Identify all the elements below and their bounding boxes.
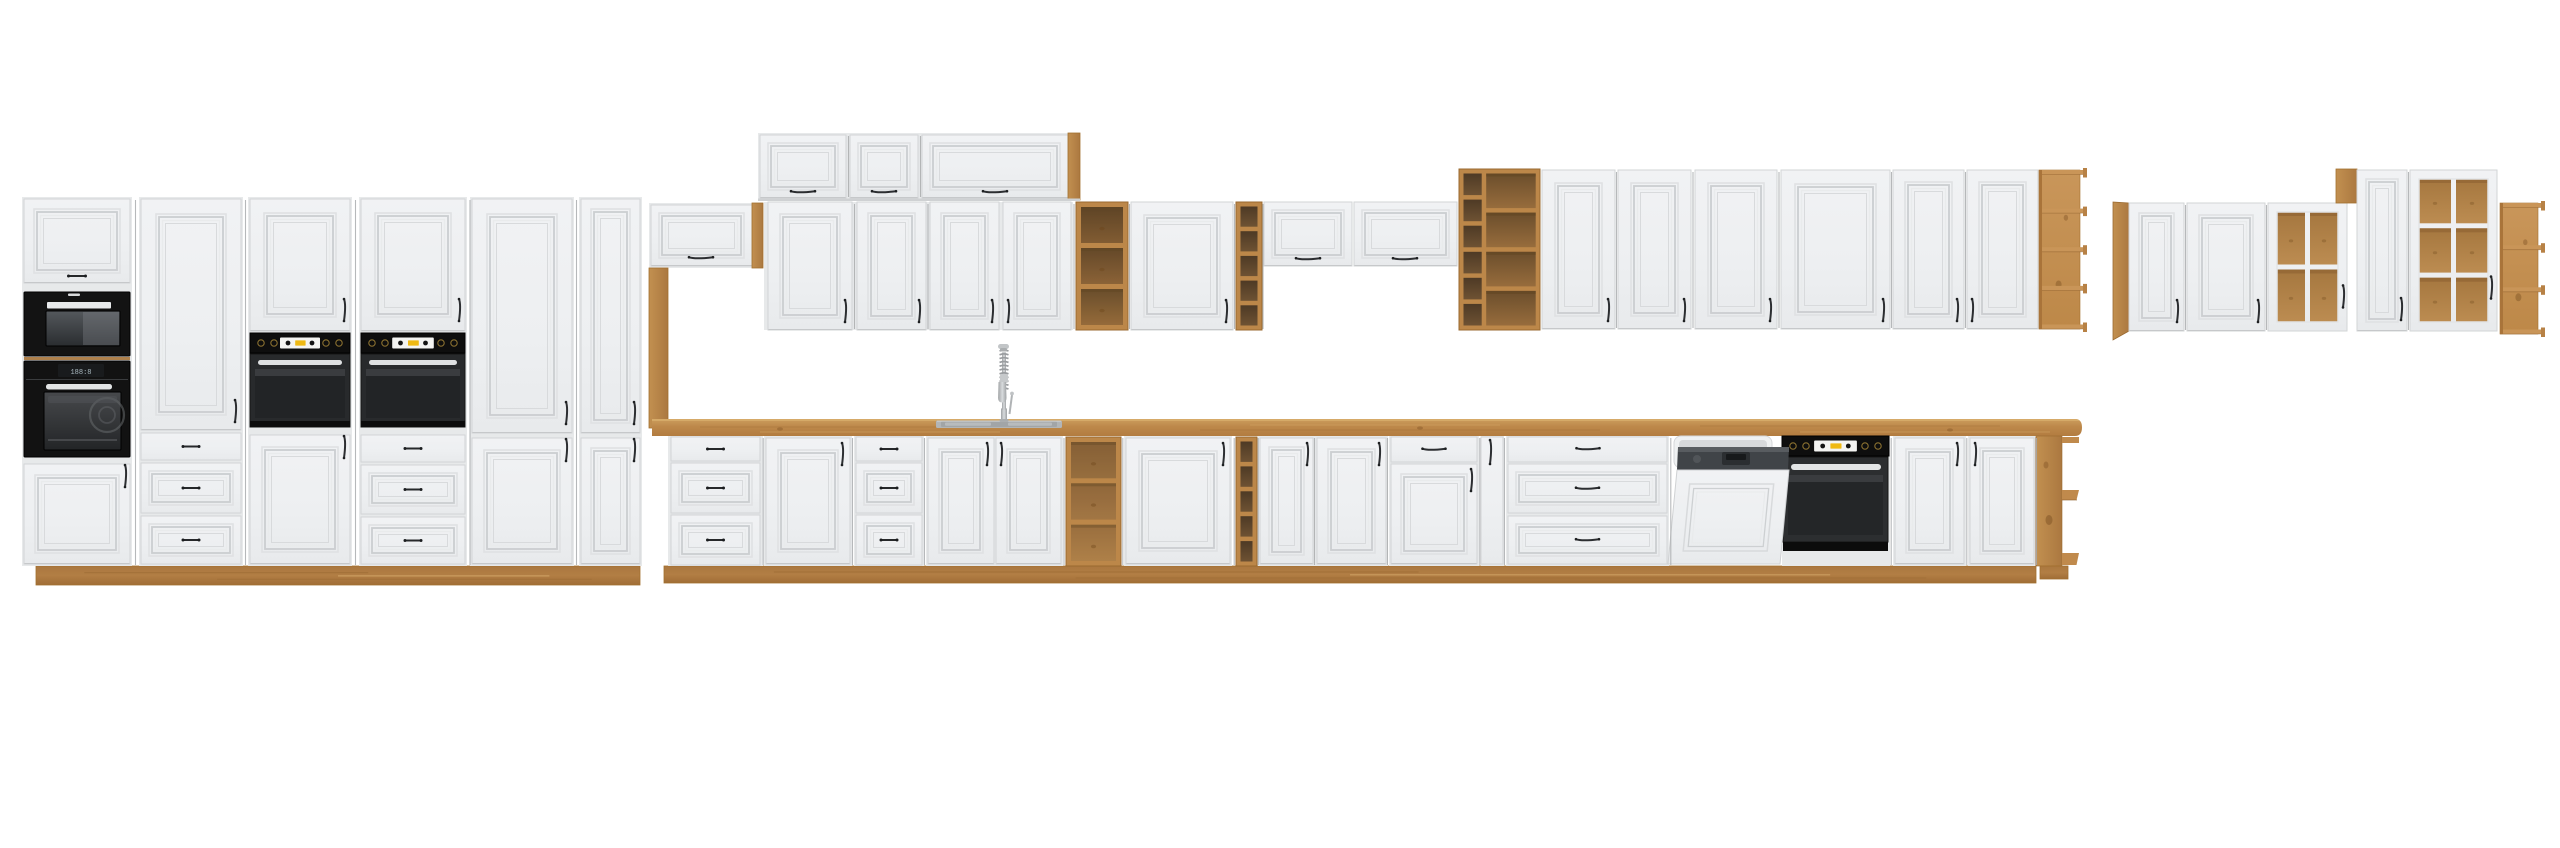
svg-text:188:8: 188:8 bbox=[70, 369, 91, 377]
